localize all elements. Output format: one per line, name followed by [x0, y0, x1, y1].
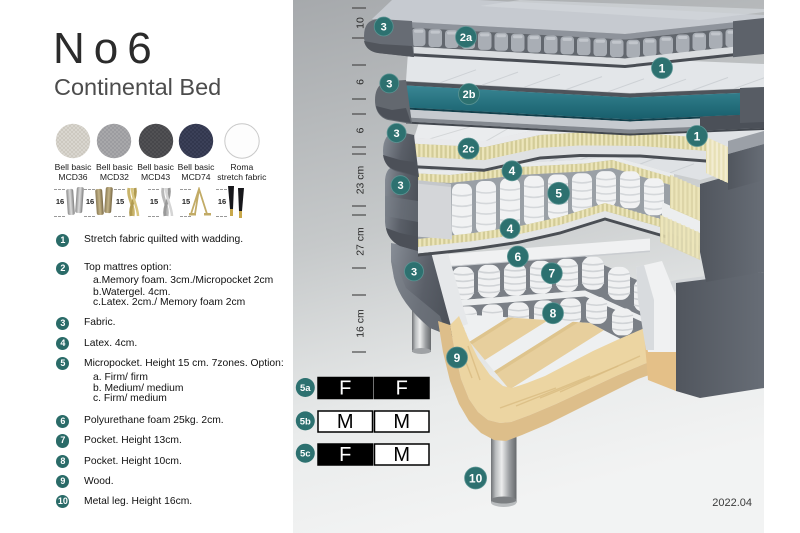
- svg-text:4: 4: [509, 164, 516, 178]
- svg-text:F: F: [396, 378, 408, 400]
- svg-text:8: 8: [550, 307, 557, 321]
- svg-text:3: 3: [397, 180, 403, 192]
- svg-text:M: M: [337, 411, 354, 433]
- svg-text:2022.04: 2022.04: [712, 497, 752, 509]
- svg-text:10: 10: [355, 17, 367, 29]
- svg-text:3: 3: [381, 21, 387, 33]
- svg-text:M: M: [393, 444, 410, 466]
- svg-text:3: 3: [411, 266, 417, 278]
- svg-text:7: 7: [548, 267, 555, 281]
- svg-text:5: 5: [555, 187, 562, 201]
- svg-text:2c: 2c: [462, 143, 474, 155]
- svg-text:9: 9: [454, 351, 461, 365]
- svg-text:16 cm: 16 cm: [355, 309, 367, 338]
- svg-text:F: F: [339, 378, 351, 400]
- svg-text:F: F: [339, 444, 351, 466]
- svg-text:1: 1: [694, 129, 701, 143]
- svg-text:3: 3: [386, 78, 392, 90]
- svg-text:10: 10: [469, 471, 483, 485]
- svg-text:6: 6: [355, 79, 367, 85]
- svg-text:4: 4: [507, 222, 514, 236]
- svg-text:6: 6: [515, 250, 522, 264]
- svg-text:5b: 5b: [300, 416, 311, 427]
- svg-text:5a: 5a: [300, 383, 311, 394]
- svg-text:1: 1: [659, 61, 666, 75]
- svg-text:2a: 2a: [460, 32, 473, 44]
- svg-text:M: M: [393, 411, 410, 433]
- svg-text:23 cm: 23 cm: [355, 165, 367, 194]
- svg-text:2b: 2b: [463, 89, 476, 101]
- svg-text:3: 3: [394, 128, 400, 140]
- svg-text:6: 6: [355, 127, 367, 133]
- svg-text:5c: 5c: [300, 449, 311, 460]
- svg-text:27 cm: 27 cm: [355, 227, 367, 256]
